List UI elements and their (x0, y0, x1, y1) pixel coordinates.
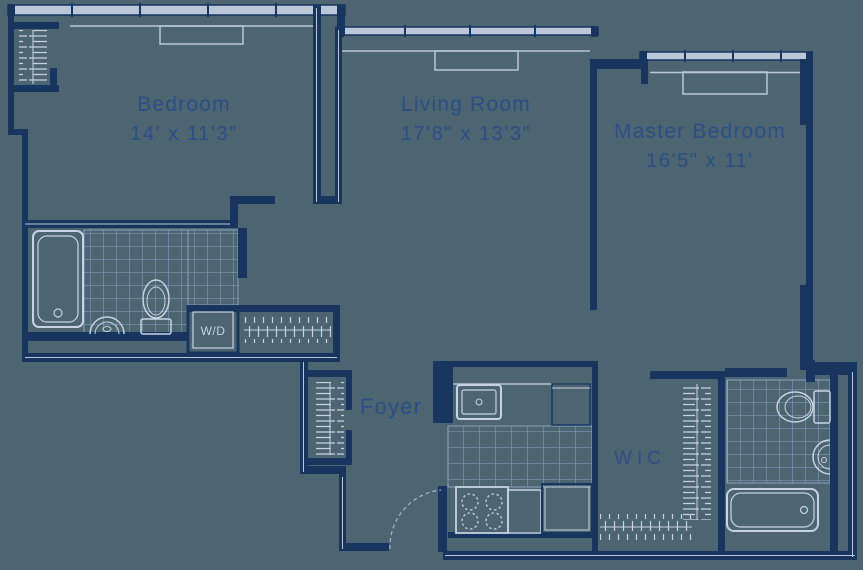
wall-foyer-bottom-step (339, 543, 389, 551)
entry-door-leaf (438, 486, 447, 552)
windows (8, 3, 813, 62)
master-bedroom-label: Master Bedroom (614, 120, 786, 143)
wall-wic-north (650, 371, 725, 379)
wall-wic-east (718, 371, 725, 553)
kitchen-pier (433, 361, 453, 423)
floor-plan: W/D (0, 0, 863, 570)
washer-dryer-label: W/D (201, 324, 226, 338)
wall-kitchen-north-edge (450, 361, 598, 367)
wall-west-mid (22, 129, 28, 228)
bedroom-label: Bedroom (137, 93, 231, 116)
refrigerator-icon (542, 484, 592, 533)
wall-bathroom-east-upper (238, 228, 247, 278)
wall-west-bathroom (22, 228, 28, 353)
wall-master-east-b (806, 125, 813, 285)
living-room-dimensions: 17'8" x 13'3" (401, 123, 532, 145)
stove-icon (456, 487, 508, 533)
wall-master-nw-v (641, 64, 648, 84)
wall-master-east-c (800, 285, 813, 370)
wall-master-west (590, 59, 597, 310)
kitchen-tile-floor (448, 426, 592, 487)
wall-foyer-step (300, 466, 346, 474)
bedroom-closet-rod (19, 30, 47, 84)
wic-rod-vertical (683, 384, 711, 520)
wic-label: WIC (614, 448, 666, 469)
wall-west-upper (8, 5, 14, 135)
wall-cap (313, 196, 342, 204)
bedroom-closet-wall-top (14, 22, 59, 29)
wall-master-bath-east-inner (830, 375, 838, 553)
kitchen-counter (508, 490, 541, 533)
hall-closet-rod (244, 317, 331, 343)
floor-plan-drawing: W/D (0, 0, 863, 570)
foyer-label: Foyer (360, 394, 422, 419)
wall-master-east-a (800, 59, 813, 125)
kitchen-sink-icon (457, 385, 501, 419)
bedroom-closet-wall-stub (50, 68, 57, 92)
bedroom-dimensions: 14' x 11'3" (130, 123, 238, 145)
wall-foyer-closet-right-b (346, 430, 352, 465)
wall-foyer-closet-bottom (303, 458, 352, 465)
living-room-ptac-unit (435, 51, 518, 70)
wall-master-bath-north (725, 368, 787, 377)
bathroom-1-tile-floor-arm (188, 230, 238, 305)
wall-foyer-closet-top (303, 370, 352, 377)
living-room-label: Living Room (401, 93, 531, 116)
bedroom-window (8, 3, 345, 17)
bathtub-icon (33, 231, 83, 327)
master-bedroom-dimensions: 16'5" x 11' (646, 150, 754, 172)
foyer-closet-rod (316, 382, 344, 455)
wall-foyer-closet-right-a (346, 370, 352, 410)
washer-dryer-unit: W/D (188, 307, 238, 353)
entry-door-swing-arc (390, 490, 441, 549)
bedroom-ptac-unit (160, 26, 243, 44)
master-ptac-unit (683, 72, 767, 94)
wall-bedroom-door-step-h (230, 196, 275, 204)
master-bathtub-icon (727, 489, 818, 531)
dishwasher-icon (552, 384, 590, 425)
wall-hall-closet-east (333, 305, 340, 355)
living-room-window (337, 25, 598, 37)
wic-rod-horizontal (600, 514, 692, 540)
master-bedroom-window (640, 50, 813, 62)
wall-master-nw-h (595, 59, 648, 69)
